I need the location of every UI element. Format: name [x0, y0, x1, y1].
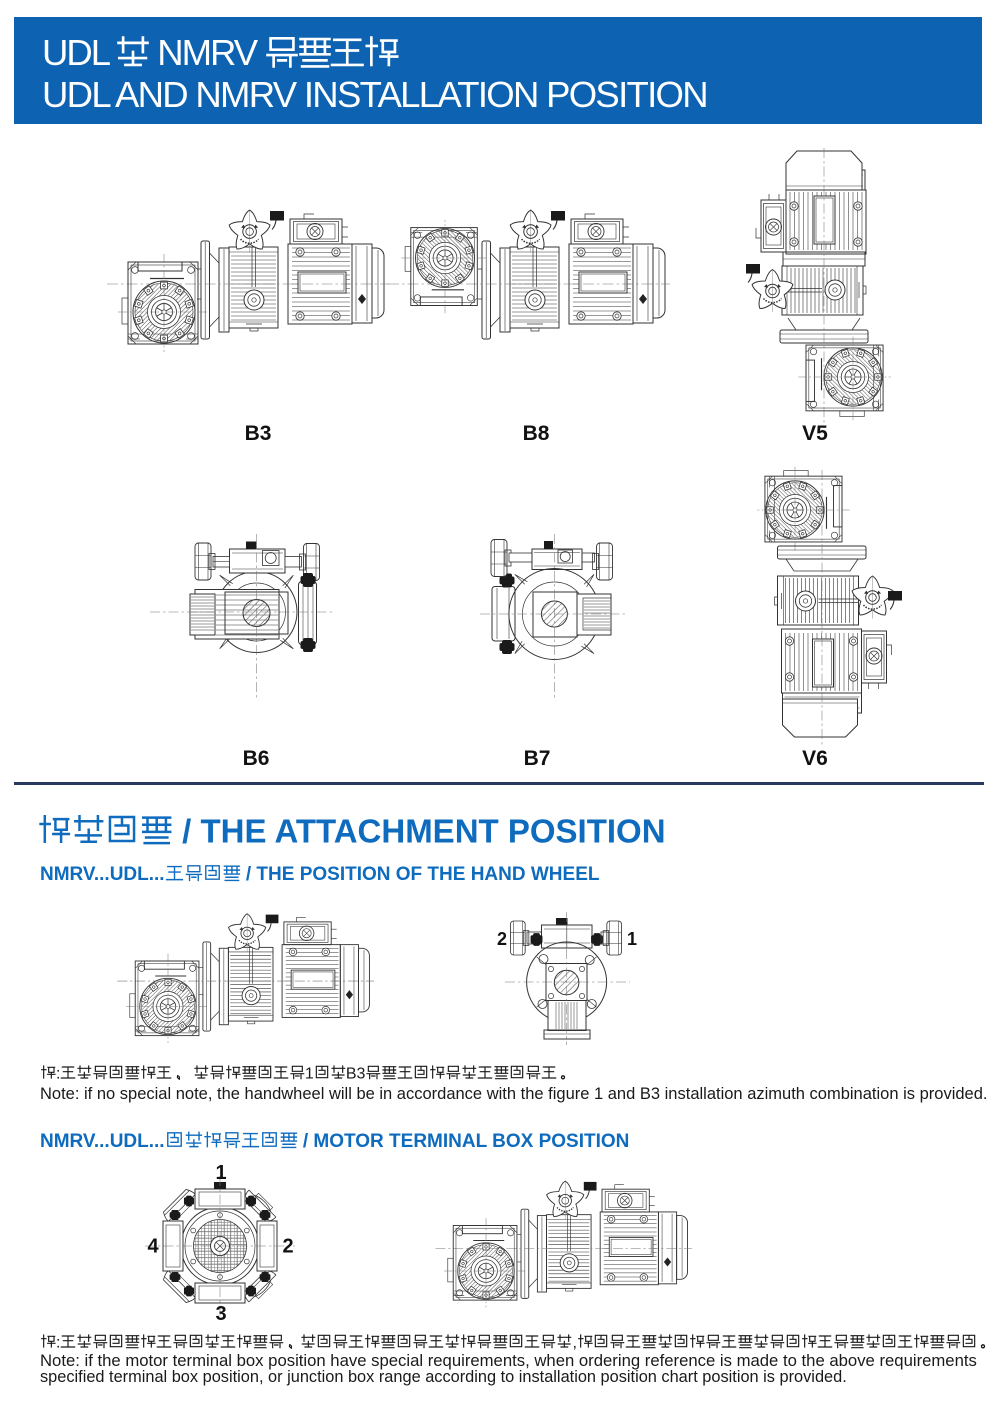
svg-text:4: 4	[147, 1236, 159, 1258]
svg-text:V6: V6	[802, 747, 828, 770]
svg-text:B3: B3	[245, 422, 272, 445]
svg-text:B7: B7	[524, 747, 551, 770]
svg-text:2: 2	[497, 929, 507, 949]
svg-text:2: 2	[282, 1236, 293, 1258]
svg-text:B8: B8	[523, 422, 550, 445]
svg-text:1: 1	[215, 1162, 226, 1184]
svg-text:1: 1	[627, 929, 637, 949]
svg-text:3: 3	[215, 1303, 226, 1325]
svg-text:V5: V5	[802, 422, 828, 445]
svg-text:B6: B6	[243, 747, 270, 770]
